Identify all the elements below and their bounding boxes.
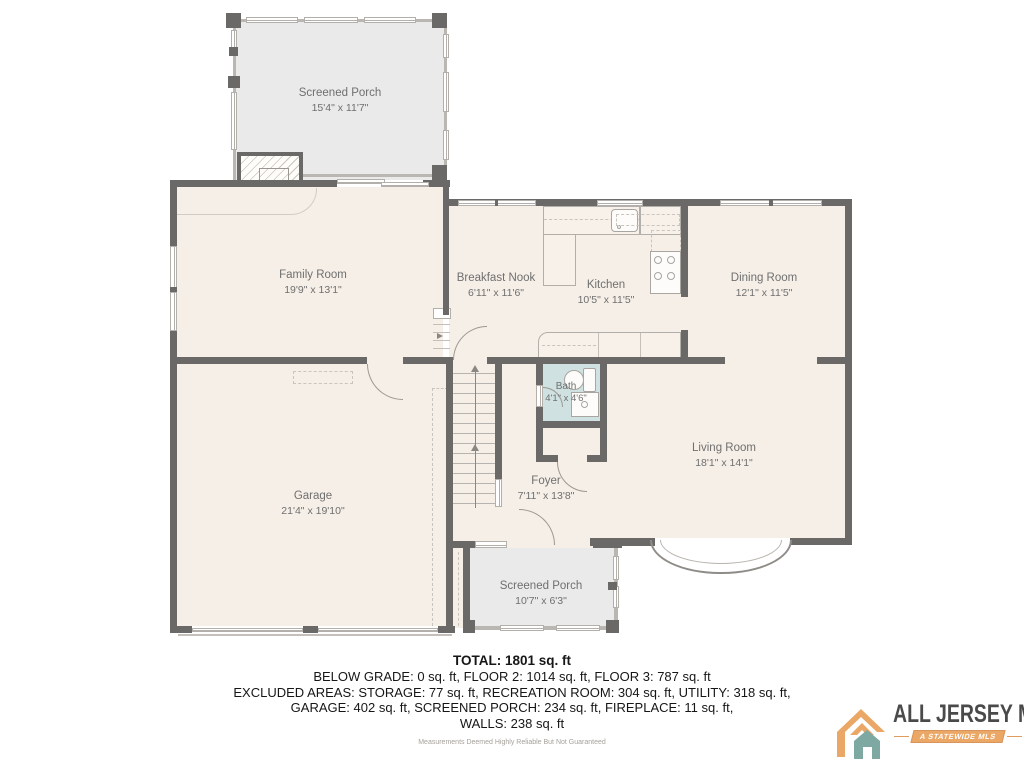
window (170, 246, 177, 288)
room-label-garage: Garage 21'4" x 19'10" (281, 489, 344, 518)
window (443, 72, 449, 112)
window (246, 17, 298, 23)
wall-segment (170, 357, 367, 364)
window-mullion (769, 200, 773, 206)
house-icon (833, 701, 889, 759)
porch-post (432, 13, 447, 28)
porch-post (463, 620, 475, 633)
wall-segment (463, 548, 470, 630)
opening-floor (600, 462, 607, 538)
wall-segment (790, 538, 852, 545)
stair-up-arrow (471, 444, 479, 451)
stove-burner (667, 256, 675, 264)
step-line (433, 324, 450, 325)
window (304, 17, 358, 23)
wall-segment (438, 626, 455, 633)
porch-post (228, 76, 240, 88)
wall-segment (593, 541, 622, 548)
garage-door (318, 628, 438, 632)
window (475, 541, 507, 548)
upper-cabinet-dashed (616, 214, 680, 226)
room-label-breakfast-nook: Breakfast Nook 6'11" x 11'6" (457, 271, 536, 300)
window (364, 17, 416, 23)
window (500, 625, 544, 631)
overhead-dashed-line (432, 388, 433, 626)
window-mullion (495, 200, 498, 206)
garage-door-track (178, 634, 452, 636)
overhead-dashed-line (458, 552, 459, 626)
total-area-text: TOTAL: 1801 sq. ft (0, 653, 1024, 669)
mls-logo: ALL JERSEY MLS A STATEWIDE MLS (833, 701, 1024, 759)
room-label-bath: Bath 4'1" x 4'6" (545, 381, 587, 405)
counter-divider (598, 333, 599, 359)
wall-segment (845, 199, 852, 545)
porch-post (608, 582, 617, 590)
window (231, 92, 237, 150)
porch-post (229, 47, 238, 56)
room-label-dining-room: Dining Room 12'1" x 11'5" (731, 271, 797, 300)
bath-door-opening (536, 385, 543, 407)
garage-door (192, 628, 303, 632)
wall-segment (681, 206, 688, 297)
summary-line: BELOW GRADE: 0 sq. ft, FLOOR 2: 1014 sq.… (0, 669, 1024, 685)
room-label-screened-porch-top: Screened Porch 15'4" x 11'7" (299, 86, 381, 115)
sliding-door (381, 182, 429, 187)
wall-segment (443, 187, 449, 315)
floor-plan-page: Screened Porch 15'4" x 11'7" Family Room… (0, 0, 1024, 768)
wall-segment (817, 357, 852, 364)
counter-divider (640, 333, 641, 359)
stair-direction-line (475, 368, 476, 508)
staircase (453, 364, 495, 510)
wall-segment (536, 357, 725, 364)
sliding-door (337, 179, 385, 184)
opening-floor (725, 357, 817, 364)
wall-segment (536, 421, 607, 428)
wall-segment (600, 364, 607, 462)
tagline-rule (1007, 736, 1022, 737)
kitchen-peninsula (538, 332, 681, 360)
room-label-foyer: Foyer 7'11" x 13'8" (518, 474, 575, 503)
wall-segment (587, 455, 607, 462)
wall-segment (303, 626, 318, 633)
window (443, 34, 449, 58)
stove-burner (654, 272, 662, 280)
window (556, 625, 600, 631)
room-label-living-room: Living Room 18'1" x 14'1" (692, 441, 756, 470)
window (613, 556, 619, 580)
window (495, 479, 502, 507)
step-line (433, 340, 450, 341)
porch-post (432, 165, 447, 180)
wall-segment (536, 455, 558, 462)
stove-burner (654, 256, 662, 264)
tagline-rule (894, 736, 909, 737)
logo-tagline: A STATEWIDE MLS (910, 730, 1005, 743)
logo-tagline-row: A STATEWIDE MLS (894, 730, 1024, 743)
logo-name: ALL JERSEY MLS (893, 701, 1024, 728)
window (443, 130, 449, 160)
step-line (433, 348, 450, 349)
ceiling-break-line (177, 188, 317, 215)
wall-segment (487, 357, 536, 364)
window (170, 292, 177, 331)
wall-segment (446, 364, 453, 633)
wall-segment (453, 541, 475, 548)
wall-segment (170, 180, 337, 187)
room-label-kitchen: Kitchen 10'5" x 11'5" (578, 278, 635, 307)
overhead-dashed-box (293, 371, 353, 384)
wall-segment (495, 364, 502, 479)
stair-up-arrow (471, 365, 479, 372)
upper-cabinet-dashed (542, 345, 596, 346)
step-arrow (437, 333, 443, 339)
window (597, 200, 643, 206)
room-label-family-room: Family Room 19'9" x 13'1" (279, 268, 347, 297)
room-label-screened-porch-bottom: Screened Porch 10'7" x 6'3" (500, 579, 582, 608)
porch-frame (303, 174, 445, 177)
stove-burner (667, 272, 675, 280)
porch-post (226, 13, 241, 28)
doorway-floor (367, 357, 403, 364)
logo-text-block: ALL JERSEY MLS A STATEWIDE MLS (893, 701, 1024, 743)
wall-segment (170, 626, 192, 633)
wall-segment (403, 357, 453, 364)
summary-line: EXCLUDED AREAS: STORAGE: 77 sq. ft, RECR… (0, 685, 1024, 701)
upper-cabinet-dashed (651, 230, 681, 252)
porch-post (606, 620, 619, 633)
